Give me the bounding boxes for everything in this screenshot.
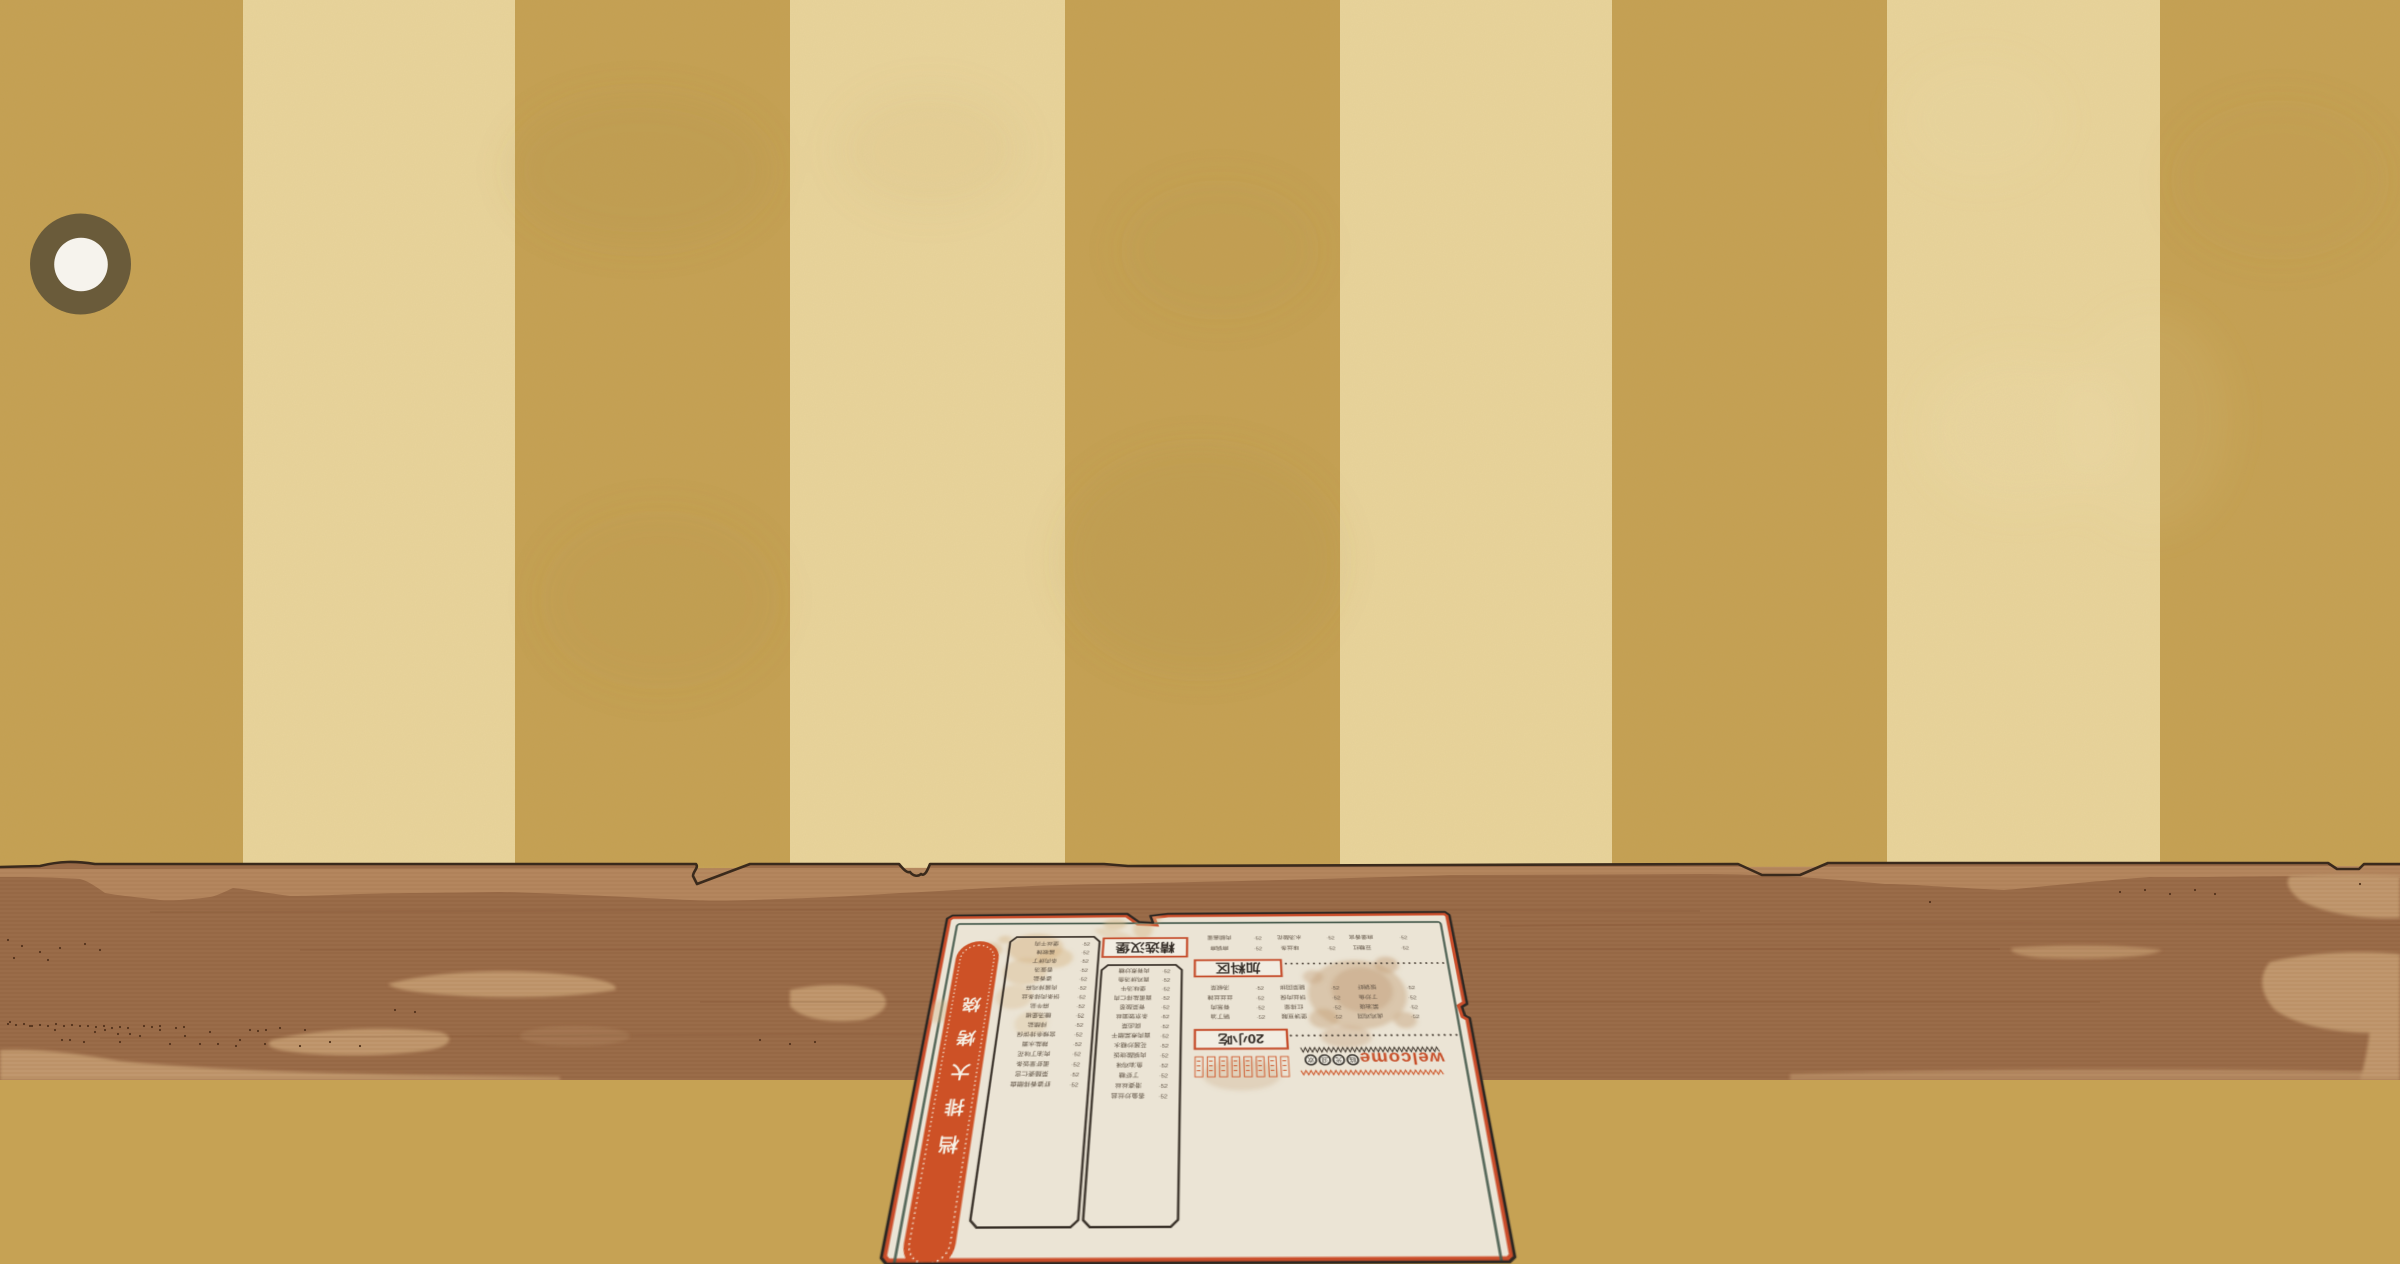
svg-text:welcome: welcome (1358, 1048, 1447, 1067)
svg-text:·52: ·52 (1334, 1014, 1343, 1020)
svg-text:·52: ·52 (1256, 1005, 1265, 1011)
svg-text:·52: ·52 (1331, 985, 1340, 991)
svg-text:·52: ·52 (1254, 936, 1263, 942)
svg-text:·52: ·52 (1257, 1015, 1266, 1021)
svg-text:·52: ·52 (1401, 946, 1410, 952)
svg-text:·52: ·52 (1080, 959, 1089, 965)
svg-text:·52: ·52 (1406, 985, 1416, 991)
svg-text:·52: ·52 (1078, 986, 1087, 992)
svg-text:·52: ·52 (1075, 1013, 1084, 1019)
svg-text:·52: ·52 (1159, 1063, 1168, 1070)
svg-text:·52: ·52 (1070, 1072, 1080, 1079)
svg-text:·52: ·52 (1254, 946, 1263, 952)
svg-text:·52: ·52 (1158, 1094, 1167, 1101)
svg-text:20小吃: 20小吃 (1218, 1031, 1265, 1047)
svg-text:·52: ·52 (1256, 986, 1265, 992)
svg-text:·52: ·52 (1160, 1053, 1169, 1060)
svg-text:·52: ·52 (1333, 1005, 1342, 1011)
svg-text:·52: ·52 (1161, 1024, 1170, 1030)
svg-text:·52: ·52 (1162, 978, 1171, 984)
svg-text:·52: ·52 (1162, 987, 1171, 993)
svg-text:·52: ·52 (1076, 1004, 1085, 1010)
svg-text:·52: ·52 (1079, 968, 1088, 974)
svg-text:·52: ·52 (1256, 996, 1265, 1002)
svg-text:·52: ·52 (1160, 1033, 1169, 1039)
svg-text:·52: ·52 (1161, 1014, 1170, 1020)
svg-text:·52: ·52 (1408, 995, 1418, 1001)
svg-text:加料区: 加料区 (1215, 960, 1262, 975)
svg-text:·52: ·52 (1409, 1005, 1419, 1011)
svg-text:欢: 欢 (1306, 1056, 1314, 1065)
svg-text:·52: ·52 (1162, 969, 1171, 975)
svg-text:·52: ·52 (1159, 1073, 1168, 1080)
svg-text:·52: ·52 (1327, 946, 1336, 952)
svg-text:·52: ·52 (1069, 1082, 1079, 1089)
svg-text:·52: ·52 (1082, 942, 1091, 948)
svg-text:·52: ·52 (1411, 1014, 1421, 1020)
svg-text:·52: ·52 (1079, 977, 1088, 983)
svg-text:·52: ·52 (1074, 1023, 1083, 1029)
svg-text:·52: ·52 (1077, 995, 1086, 1001)
svg-text:·52: ·52 (1072, 1052, 1082, 1059)
svg-text:·52: ·52 (1081, 950, 1090, 956)
svg-text:·52: ·52 (1161, 1005, 1170, 1011)
svg-text:·52: ·52 (1160, 1043, 1169, 1050)
svg-text:精选汉堡: 精选汉堡 (1115, 940, 1175, 954)
svg-text:·52: ·52 (1161, 996, 1170, 1002)
svg-text:·52: ·52 (1326, 936, 1335, 942)
svg-text:·52: ·52 (1399, 935, 1408, 941)
svg-text:·52: ·52 (1332, 995, 1341, 1001)
svg-text:·52: ·52 (1071, 1062, 1081, 1069)
svg-text:·52: ·52 (1159, 1083, 1168, 1090)
svg-text:·52: ·52 (1074, 1032, 1083, 1038)
svg-text:档: 档 (936, 1133, 960, 1157)
svg-text:·52: ·52 (1073, 1042, 1083, 1049)
